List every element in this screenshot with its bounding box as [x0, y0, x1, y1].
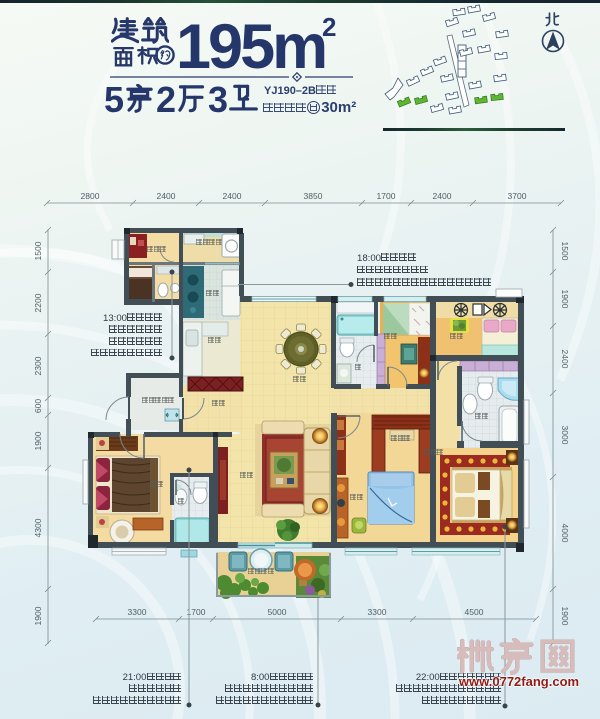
svg-text:2200: 2200 — [33, 293, 43, 312]
svg-text:1900: 1900 — [33, 606, 43, 625]
svg-text:2400: 2400 — [157, 191, 176, 201]
svg-text:2400: 2400 — [560, 350, 570, 369]
svg-text:5000: 5000 — [268, 607, 287, 617]
svg-text:1500: 1500 — [560, 242, 570, 261]
svg-text:2400: 2400 — [433, 191, 452, 201]
svg-text:3300: 3300 — [128, 607, 147, 617]
svg-text:2800: 2800 — [81, 191, 100, 201]
svg-text:1500: 1500 — [33, 241, 43, 260]
svg-text:600: 600 — [33, 399, 43, 413]
svg-text:3700: 3700 — [508, 191, 527, 201]
svg-text:1900: 1900 — [33, 431, 43, 450]
svg-text:2300: 2300 — [33, 356, 43, 375]
svg-text:3300: 3300 — [368, 607, 387, 617]
svg-text:4000: 4000 — [560, 524, 570, 543]
svg-text:3850: 3850 — [304, 191, 323, 201]
svg-text:1900: 1900 — [560, 607, 570, 626]
svg-text:2400: 2400 — [223, 191, 242, 201]
svg-text:3000: 3000 — [560, 426, 570, 445]
svg-text:4300: 4300 — [33, 518, 43, 537]
svg-text:www.0772fang.com: www.0772fang.com — [458, 674, 579, 689]
svg-text:1700: 1700 — [377, 191, 396, 201]
svg-text:1900: 1900 — [560, 290, 570, 309]
svg-text:4500: 4500 — [465, 607, 484, 617]
